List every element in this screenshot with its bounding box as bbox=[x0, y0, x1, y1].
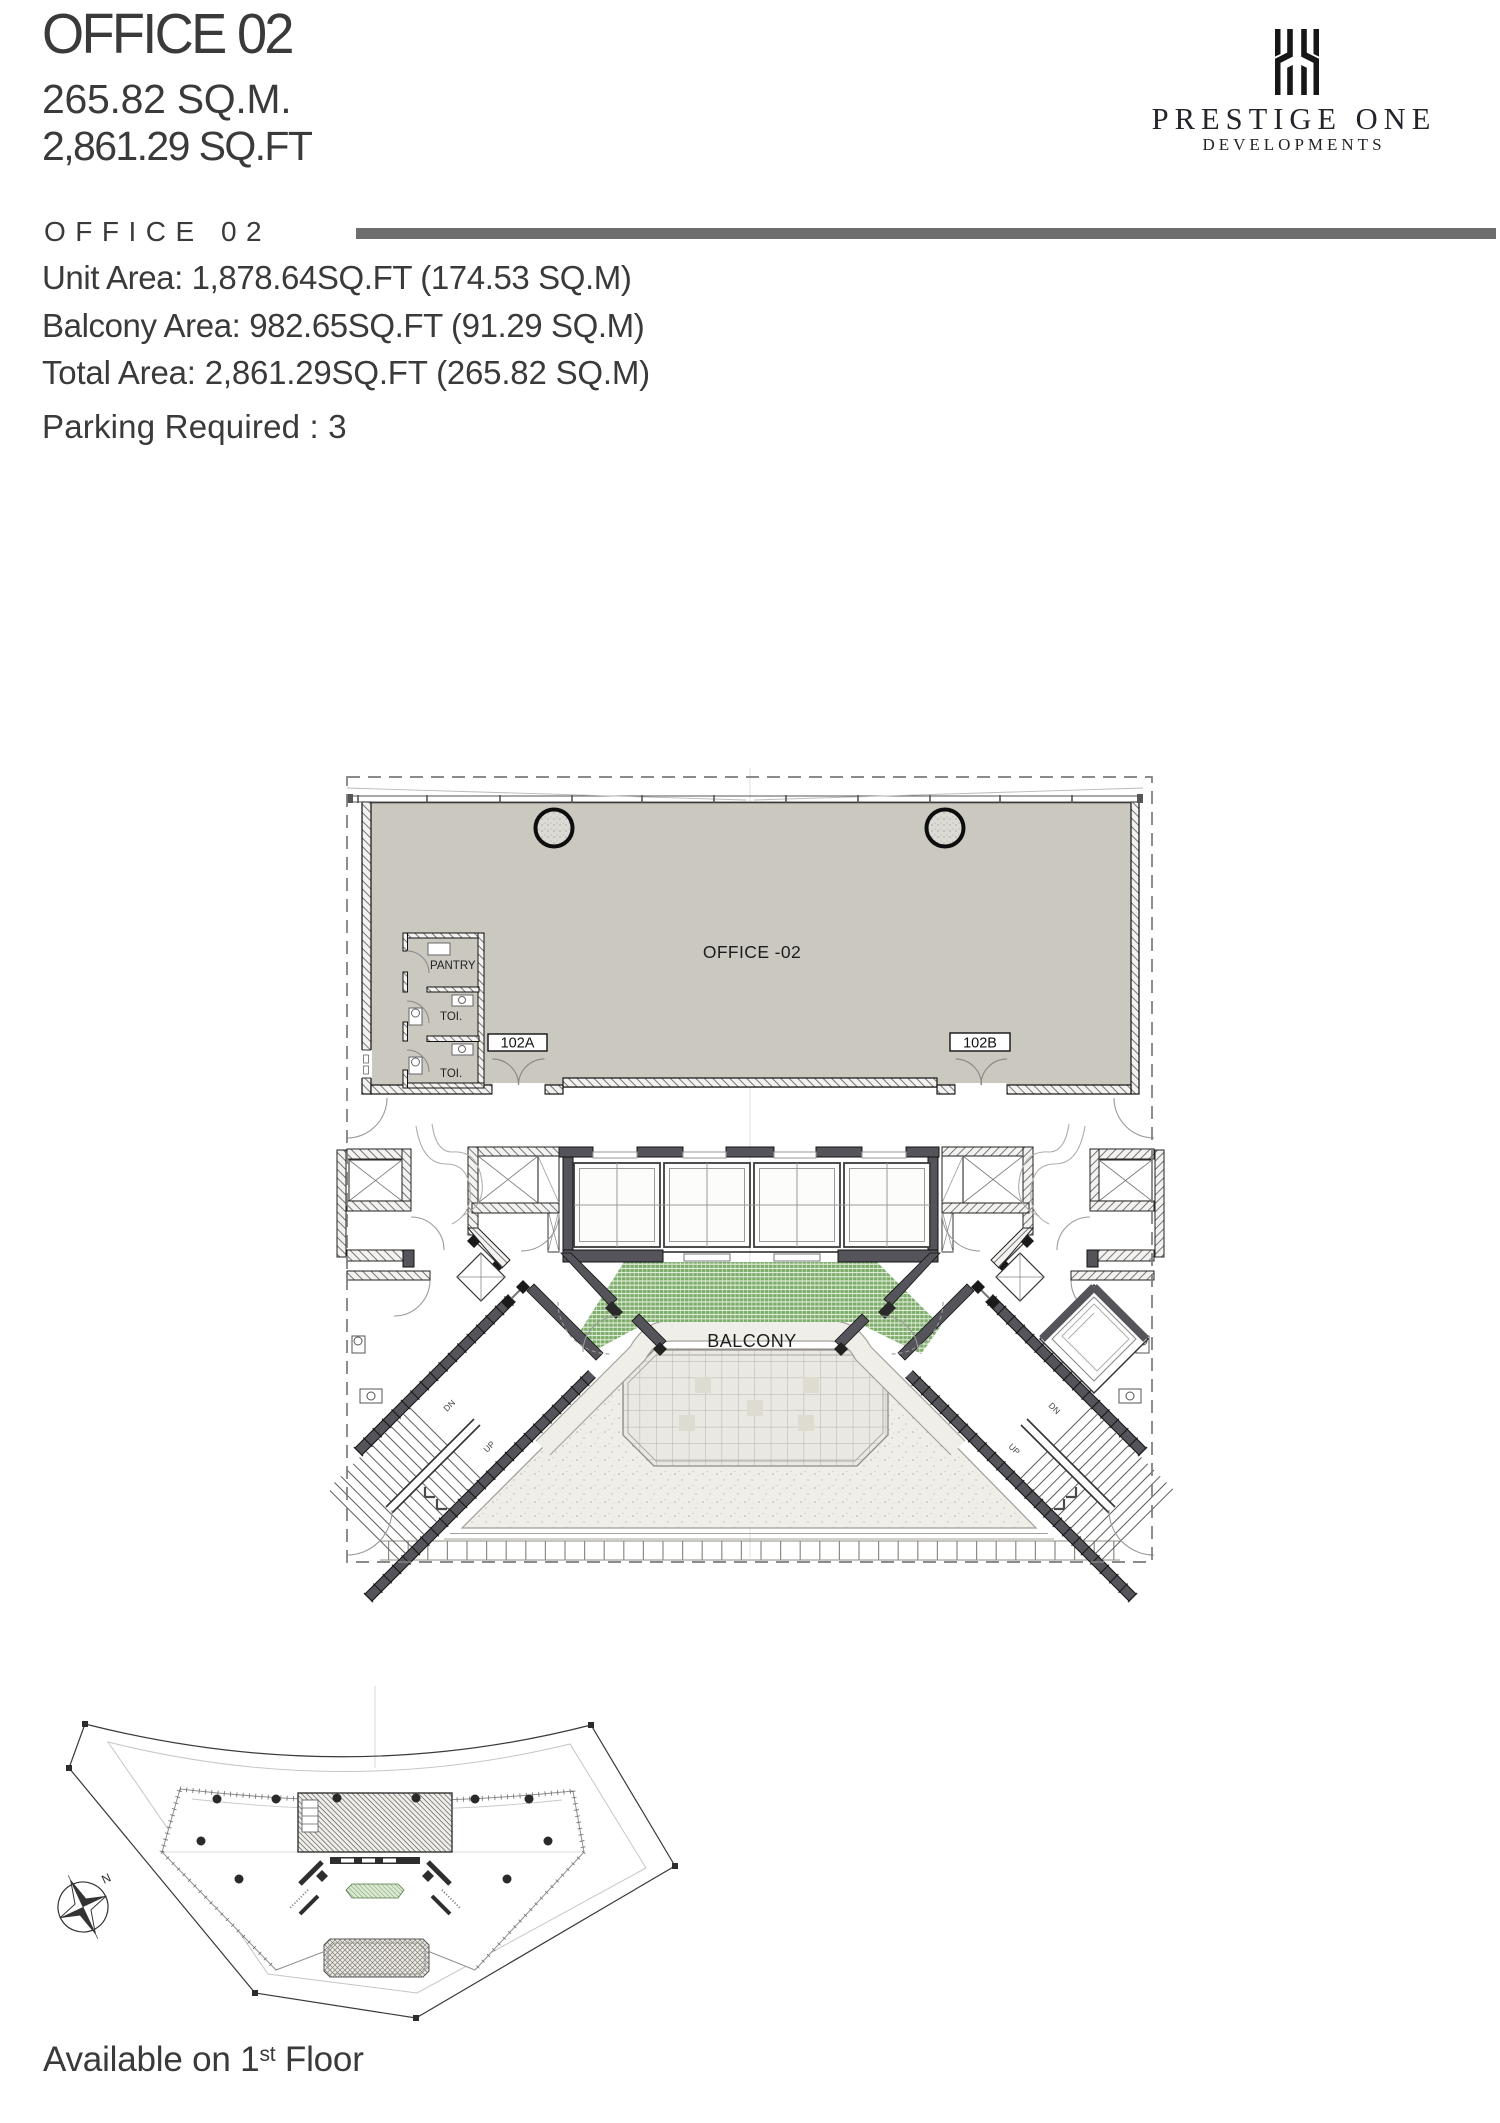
svg-text:TOI.: TOI. bbox=[440, 1068, 462, 1080]
svg-text:PANTRY: PANTRY bbox=[430, 960, 476, 972]
svg-text:N: N bbox=[99, 1870, 113, 1886]
svg-text:OFFICE -02: OFFICE -02 bbox=[703, 942, 801, 962]
svg-text:DN: DN bbox=[441, 1398, 457, 1414]
svg-text:UP: UP bbox=[481, 1439, 497, 1455]
svg-text:BALCONY: BALCONY bbox=[707, 1331, 797, 1351]
svg-text:UP: UP bbox=[1007, 1441, 1023, 1457]
svg-text:DEVELOPMENTS: DEVELOPMENTS bbox=[1202, 135, 1385, 154]
svg-text:TOI.: TOI. bbox=[440, 1011, 462, 1023]
svg-text:DN: DN bbox=[1047, 1400, 1063, 1416]
svg-text:PRESTIGE ONE: PRESTIGE ONE bbox=[1152, 102, 1437, 136]
svg-text:102B: 102B bbox=[963, 1036, 997, 1052]
svg-text:102A: 102A bbox=[501, 1036, 535, 1052]
